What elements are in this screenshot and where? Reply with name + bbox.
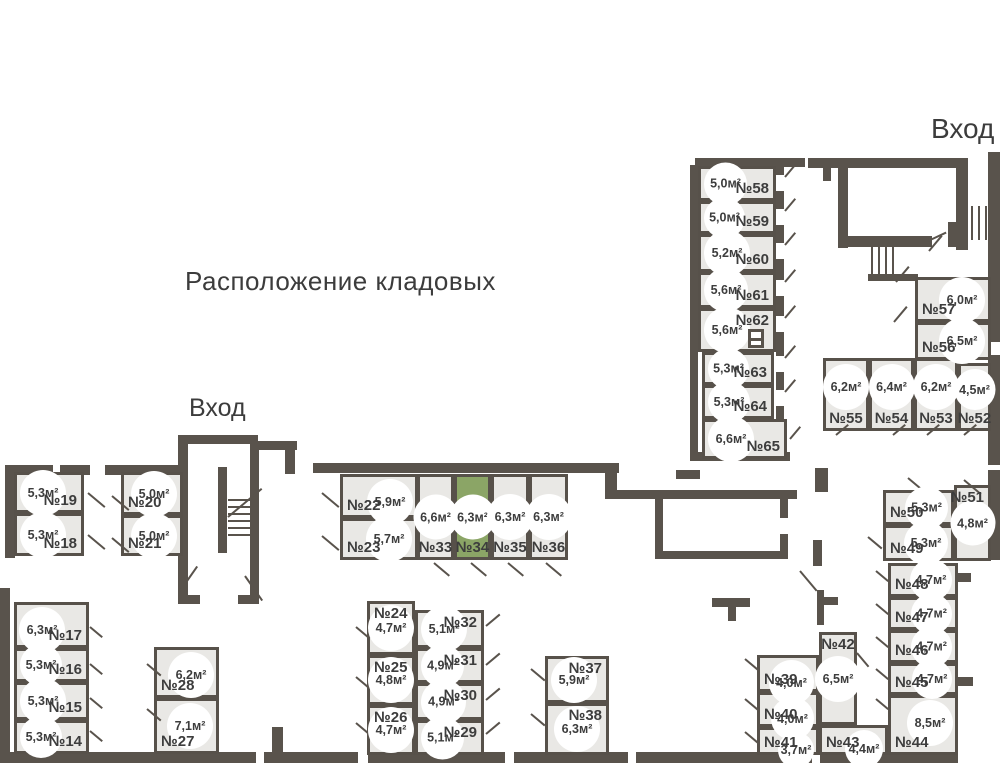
room-59[interactable]: 5,0м²№59	[698, 201, 776, 234]
room-number: №50	[890, 504, 923, 521]
door-swing-line	[485, 722, 500, 735]
room-22[interactable]: 5,9м²№22	[340, 474, 418, 518]
stairs	[964, 206, 988, 240]
room-area: 4,5м²	[959, 383, 990, 397]
room-number: №54	[875, 410, 908, 427]
room-54[interactable]: 6,4м²№54	[869, 358, 914, 431]
room-number: №29	[444, 724, 477, 741]
room-39[interactable]: 4,0м²№39	[757, 655, 819, 692]
room-number: №53	[919, 410, 952, 427]
room-number: №19	[44, 492, 77, 509]
door-swing-line	[433, 562, 450, 576]
room-area: 4,7м²	[376, 621, 407, 635]
door-swing-line	[784, 379, 796, 393]
room-area: 8,5м²	[915, 716, 946, 730]
room-number: №45	[895, 674, 928, 691]
room-40[interactable]: 4,0м²№40	[757, 692, 819, 727]
door-swing-line	[784, 232, 796, 246]
room-64[interactable]: 5,3м²№64	[702, 385, 774, 419]
door-swing-line	[470, 562, 487, 576]
wall-segment	[285, 450, 295, 474]
room-16[interactable]: 5,3м²№16	[14, 648, 89, 682]
room-27[interactable]: 7,1м²№27	[154, 698, 219, 754]
room-number: №16	[49, 661, 82, 678]
wall-segment	[178, 595, 200, 604]
door-swing-line	[485, 614, 500, 627]
wall-segment	[948, 222, 958, 247]
room-number: №39	[764, 671, 797, 688]
room-number: №33	[419, 539, 452, 556]
wall-segment	[0, 588, 10, 763]
room-area: 6,3м²	[533, 510, 564, 524]
door-swing-line	[485, 653, 500, 666]
wall-segment	[655, 497, 663, 559]
door-swing-line	[530, 668, 545, 681]
room-number: №46	[895, 642, 928, 659]
wall-segment	[628, 752, 636, 763]
wall-segment	[776, 280, 784, 296]
room-number: №23	[347, 539, 380, 556]
room-number: №21	[128, 535, 161, 552]
wall-segment	[815, 468, 828, 492]
room-number: №63	[734, 364, 767, 381]
wall-segment	[822, 597, 838, 605]
room-number: №34	[456, 539, 489, 556]
stairs	[871, 243, 898, 276]
room-number: №52	[958, 410, 991, 427]
room-34[interactable]: 6,3м²№34	[454, 474, 491, 560]
wall-segment	[776, 243, 784, 259]
door-swing-line	[875, 698, 889, 710]
room-number: №58	[736, 180, 769, 197]
room-number: №20	[128, 494, 161, 511]
room-area: 7,1м²	[175, 719, 206, 733]
room-number: №47	[895, 609, 928, 626]
room-36[interactable]: 6,3м²№36	[529, 474, 568, 560]
room-45[interactable]: 4,7м²№45	[888, 663, 958, 695]
area-circle: 4,5м²	[954, 369, 995, 410]
room-area: 6,4м²	[876, 380, 907, 394]
door-swing-line	[784, 305, 796, 319]
room-49[interactable]: 5,3м²№49	[883, 525, 954, 561]
door-swing-line	[784, 198, 796, 212]
room-number: №40	[764, 706, 797, 723]
room-number: №56	[922, 339, 955, 356]
door-swing-line	[321, 535, 339, 551]
door-swing-line	[875, 636, 889, 648]
room-number: №51	[951, 489, 984, 506]
room-number: №22	[347, 497, 380, 514]
room-number: №32	[444, 614, 477, 631]
wall-segment	[780, 492, 788, 518]
room-21[interactable]: 5,0м²№21	[121, 515, 183, 556]
door-swing-line	[867, 536, 882, 549]
room-number: №25	[374, 659, 407, 676]
room-65[interactable]: 6,6м²№65	[702, 419, 787, 459]
room-area: 6,3м²	[457, 510, 488, 524]
room-number: №41	[764, 734, 797, 751]
wall-segment	[823, 167, 831, 181]
door-swing-line	[89, 697, 103, 709]
room-number: №35	[493, 539, 526, 556]
wall-segment	[218, 467, 227, 553]
door-swing-line	[784, 269, 796, 283]
room-number: №61	[736, 287, 769, 304]
entrance-label-top: Вход	[931, 113, 994, 145]
door-swing-line	[89, 730, 103, 742]
room-63[interactable]: 5,3м²№63	[702, 352, 774, 385]
floor-plan: Расположение кладовых Вход Вход 5,3м²№19…	[0, 0, 1000, 763]
door-swing-line	[321, 492, 339, 508]
room-number: №43	[826, 734, 859, 751]
door-swing-line	[893, 306, 907, 323]
door-swing-line	[856, 652, 869, 667]
room-32[interactable]: 5,1м²№32	[415, 610, 484, 648]
door-swing-line	[875, 570, 889, 582]
room-37[interactable]: 5,9м²№37	[545, 656, 609, 703]
area-circle: 6,5м²	[815, 656, 861, 702]
area-circle: 4,8м²	[950, 501, 995, 546]
room-23[interactable]: 5,7м²№23	[340, 518, 418, 560]
room-24[interactable]: 4,7м²№24	[367, 601, 415, 655]
room-number: №65	[747, 438, 780, 455]
wall-segment	[780, 534, 788, 559]
room-31[interactable]: 4,9м²№31	[415, 648, 484, 683]
room-area: 6,6м²	[420, 510, 451, 524]
room-43[interactable]: 4,4м²№43	[819, 725, 888, 755]
wall-segment	[676, 470, 700, 479]
door-swing-line	[89, 663, 103, 675]
room-number: №37	[569, 660, 602, 677]
room-33[interactable]: 6,6м²№33	[417, 474, 454, 560]
wall-segment	[573, 463, 619, 473]
room-28[interactable]: 6,2м²№28	[154, 647, 219, 698]
wall-segment	[776, 390, 784, 406]
wall-segment	[690, 165, 698, 461]
room-number: №48	[895, 576, 928, 593]
room-48[interactable]: 4,7м²№48	[888, 563, 958, 597]
room-42[interactable]: 6,5м²№42	[819, 632, 857, 725]
room-area: 4,8м²	[957, 516, 988, 530]
room-number: №27	[161, 733, 194, 750]
room-30[interactable]: 4,9м²№30	[415, 683, 484, 720]
wall-segment	[256, 752, 264, 763]
room-26[interactable]: 4,7м²№26	[367, 705, 415, 755]
room-20[interactable]: 5,0м²№20	[121, 472, 183, 515]
room-60[interactable]: 5,2м²№60	[698, 234, 776, 272]
room-number: №17	[49, 627, 82, 644]
door-swing-line	[799, 570, 817, 591]
wall-segment	[776, 316, 784, 332]
room-46[interactable]: 4,7м²№46	[888, 630, 958, 663]
room-57[interactable]: 6,0м²№57	[915, 277, 991, 322]
room-number: №44	[895, 734, 928, 751]
wall-segment	[776, 209, 784, 225]
room-number: №55	[829, 410, 862, 427]
wall-segment	[257, 441, 297, 450]
wall-segment	[505, 752, 514, 763]
wall-segment	[178, 435, 258, 444]
room-number: №62	[736, 312, 769, 329]
room-62[interactable]: 5,6м²№62	[698, 308, 776, 352]
room-number: №28	[161, 677, 194, 694]
room-number: №49	[890, 540, 923, 557]
wall-segment	[776, 356, 784, 372]
room-number: №38	[569, 707, 602, 724]
wall-segment	[813, 540, 822, 566]
door-swing-line	[485, 688, 500, 701]
panel-symbol	[748, 329, 764, 348]
room-44[interactable]: 8,5м²№44	[888, 695, 958, 755]
door-swing-line	[875, 668, 889, 680]
room-25[interactable]: 4,8м²№25	[367, 655, 415, 705]
door-swing-line	[530, 713, 545, 726]
room-number: №24	[374, 605, 407, 622]
door-swing-line	[789, 426, 801, 440]
room-50[interactable]: 5,3м²№50	[883, 490, 954, 525]
door-swing-line	[545, 562, 562, 576]
room-number: №59	[736, 213, 769, 230]
room-61[interactable]: 5,6м²№61	[698, 272, 776, 308]
room-number: №26	[374, 709, 407, 726]
room-35[interactable]: 6,3м²№35	[491, 474, 529, 560]
room-number: №15	[49, 699, 82, 716]
wall-segment	[605, 490, 797, 499]
room-area: 6,5м²	[823, 672, 854, 686]
room-56[interactable]: 6,5м²№56	[915, 322, 991, 360]
room-55[interactable]: 6,2м²№55	[823, 358, 869, 431]
room-38[interactable]: 6,3м²№38	[545, 703, 609, 755]
room-number: №30	[444, 687, 477, 704]
wall-segment	[817, 590, 824, 625]
room-18[interactable]: 5,3м²№18	[14, 513, 84, 556]
room-29[interactable]: 5,1м²№29	[415, 720, 484, 755]
wall-segment	[776, 175, 784, 191]
wall-segment	[238, 595, 259, 604]
door-swing-line	[784, 345, 796, 359]
room-area: 6,2м²	[921, 380, 952, 394]
panel-symbol-line	[751, 338, 761, 341]
area-circle: 6,2м²	[823, 364, 869, 410]
room-58[interactable]: 5,0м²№58	[698, 166, 776, 201]
room-number: №42	[821, 636, 854, 653]
area-circle: 6,4м²	[869, 364, 915, 410]
wall-segment	[313, 463, 575, 473]
wall-segment	[712, 598, 750, 607]
room-52[interactable]: 4,5м²№52	[958, 363, 991, 431]
room-19[interactable]: 5,3м²№19	[14, 472, 84, 513]
wall-segment	[655, 551, 787, 559]
room-14[interactable]: 5,3м²№14	[14, 720, 89, 754]
entrance-label-left: Вход	[189, 394, 246, 423]
wall-segment	[250, 443, 259, 603]
area-circle: 6,3м²	[526, 494, 572, 540]
room-number: №60	[736, 251, 769, 268]
room-number: №57	[922, 301, 955, 318]
door-swing-line	[875, 603, 889, 615]
area-circle: 6,2м²	[913, 364, 959, 410]
room-53[interactable]: 6,2м²№53	[914, 358, 958, 431]
room-47[interactable]: 4,7м²№47	[888, 597, 958, 630]
room-area: 6,3м²	[495, 510, 526, 524]
room-number: №18	[44, 535, 77, 552]
room-number: №31	[444, 652, 477, 669]
room-area: 6,6м²	[716, 432, 747, 446]
wall-segment	[272, 727, 283, 753]
room-area: 6,2м²	[831, 380, 862, 394]
room-15[interactable]: 5,3м²№15	[14, 682, 89, 720]
room-17[interactable]: 6,3м²№17	[14, 602, 89, 648]
room-number: №14	[49, 733, 82, 750]
door-swing-line	[507, 562, 524, 576]
room-number: №36	[532, 539, 565, 556]
door-swing-line	[87, 534, 105, 550]
page-title: Расположение кладовых	[185, 266, 496, 297]
wall-segment	[808, 158, 968, 168]
room-number: №64	[734, 398, 767, 415]
room-51[interactable]: 4,8м²№51	[954, 485, 991, 561]
door-swing-line	[89, 626, 103, 638]
door-swing-line	[87, 492, 105, 508]
wall-segment	[728, 607, 736, 621]
